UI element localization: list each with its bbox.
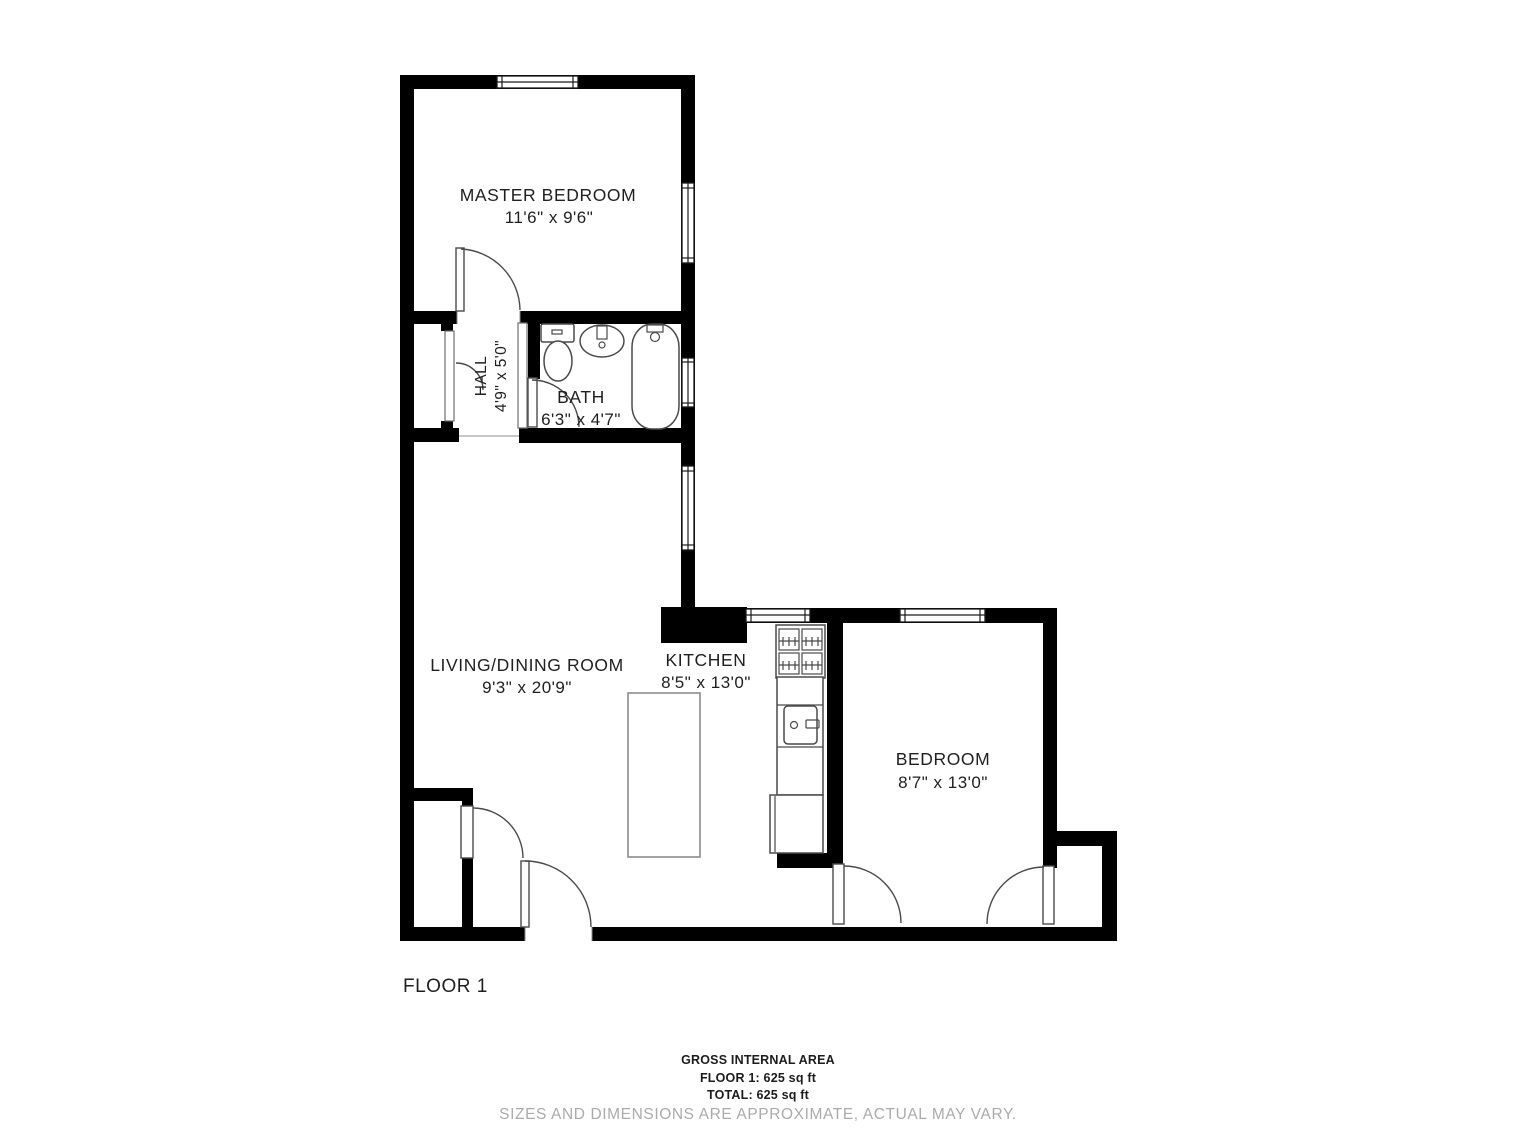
wall-bedroomcloset-right — [1102, 831, 1117, 941]
wall-left-outer — [400, 75, 414, 941]
room-living-dining: LIVING/DINING ROOM 9'3" x 20'9" — [430, 655, 624, 697]
wall-hall-bottom — [400, 428, 459, 442]
master-bedroom-door — [456, 248, 520, 311]
entry-door — [521, 861, 591, 927]
wall-lrcloset-right — [462, 856, 473, 927]
entry-door-gap — [525, 927, 592, 941]
total-area-value: TOTAL: 625 sq ft — [707, 1088, 810, 1102]
windows — [497, 76, 985, 622]
hall-dims: 4'9" x 5'0" — [493, 340, 510, 412]
window-master-right — [682, 183, 694, 263]
living-dining-label: LIVING/DINING ROOM — [430, 655, 624, 675]
master-bedroom-label: MASTER BEDROOM — [460, 185, 637, 205]
room-hall: HALL 4'9" x 5'0" — [473, 340, 510, 412]
wall-bedroom-right — [1043, 608, 1057, 868]
room-kitchen: KITCHEN 8'5" x 13'0" — [661, 650, 751, 692]
room-master-bedroom: MASTER BEDROOM 11'6" x 9'6" — [460, 185, 637, 227]
floorplan-svg: MASTER BEDROOM 11'6" x 9'6" HALL 4'9" x … — [0, 0, 1524, 1140]
bath-dims: 6'3" x 4'7" — [541, 410, 621, 429]
window-kitchen-top — [746, 609, 810, 622]
bedroom-label: BEDROOM — [896, 749, 991, 769]
toilet-icon — [541, 324, 574, 381]
stove-icon — [776, 625, 825, 678]
bedroom-dims: 8'7" x 13'0" — [898, 773, 988, 792]
floor-area-value: FLOOR 1: 625 sq ft — [700, 1071, 817, 1085]
area-summary: GROSS INTERNAL AREA FLOOR 1: 625 sq ft T… — [499, 1053, 1017, 1123]
living-dining-dims: 9'3" x 20'9" — [482, 678, 572, 697]
gross-area-title: GROSS INTERNAL AREA — [681, 1053, 835, 1067]
wall-hall-bath-divider — [528, 323, 540, 379]
floorplan-page: MASTER BEDROOM 11'6" x 9'6" HALL 4'9" x … — [0, 0, 1524, 1140]
kitchen-island — [628, 693, 700, 857]
kitchen-sink-icon — [784, 706, 819, 744]
room-labels: MASTER BEDROOM 11'6" x 9'6" HALL 4'9" x … — [430, 185, 990, 792]
hall-bath-jamb-panel — [518, 323, 527, 428]
room-bath: BATH 6'3" x 4'7" — [541, 387, 621, 429]
refrigerator-icon — [770, 795, 823, 853]
dimensions-disclaimer: SIZES AND DIMENSIONS ARE APPROXIMATE, AC… — [499, 1106, 1017, 1123]
window-master-top — [497, 76, 578, 88]
living-closet-door — [461, 806, 523, 858]
bathtub-icon — [632, 324, 679, 429]
window-bath-right — [682, 358, 694, 407]
master-door-gap — [457, 311, 520, 324]
sink-icon — [580, 325, 624, 357]
bedroom-closet-door — [987, 866, 1054, 924]
wall-bottom-outer — [400, 927, 1117, 941]
kitchen-dims: 8'5" x 13'0" — [661, 673, 751, 692]
wall-kitchen-bedroom-divider — [827, 623, 843, 866]
window-bedroom-top — [900, 609, 985, 622]
hall-closet-sliding-door — [445, 331, 454, 421]
wall-lrcloset-top — [412, 788, 473, 801]
wall-column-block — [661, 607, 747, 643]
window-living-right — [682, 466, 694, 550]
room-bedroom: BEDROOM 8'7" x 13'0" — [896, 749, 991, 792]
floor-title: FLOOR 1 — [403, 976, 488, 997]
wall-hallcloset-stub-top — [441, 318, 453, 331]
bath-label: BATH — [557, 387, 605, 407]
master-bedroom-dims: 11'6" x 9'6" — [505, 208, 594, 227]
kitchen-label: KITCHEN — [665, 650, 746, 670]
hall-label: HALL — [473, 356, 490, 396]
wall-bath-bottom — [519, 428, 695, 443]
bedroom-door — [833, 864, 901, 924]
